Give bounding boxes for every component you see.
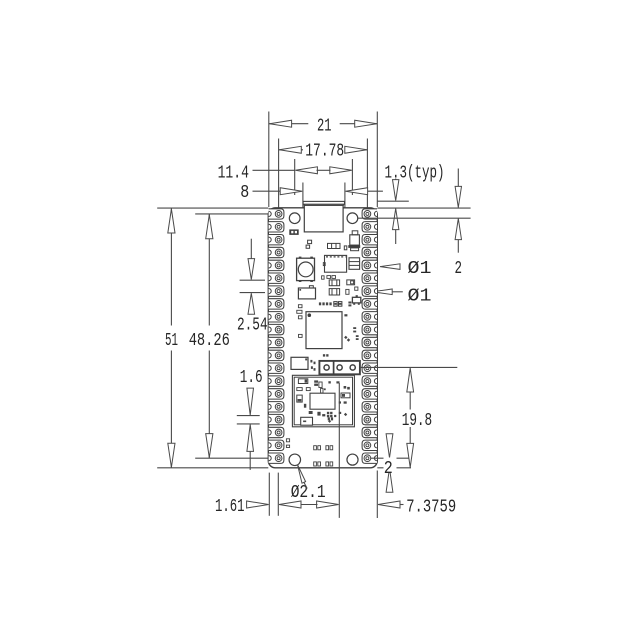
svg-text:8: 8: [240, 182, 249, 203]
svg-text:51: 51: [165, 330, 178, 351]
svg-text:1.61: 1.61: [215, 496, 245, 517]
svg-text:2.54: 2.54: [237, 314, 268, 335]
svg-text:Ø1: Ø1: [408, 258, 432, 279]
svg-text:48.26: 48.26: [189, 330, 230, 351]
svg-text:2: 2: [384, 458, 393, 479]
svg-text:11.4: 11.4: [218, 162, 249, 183]
svg-text:Ø1: Ø1: [408, 286, 432, 307]
svg-text:1.6: 1.6: [240, 367, 263, 388]
svg-text:19.8: 19.8: [402, 410, 433, 431]
svg-text:17.78: 17.78: [305, 141, 344, 162]
svg-text:Ø2.1: Ø2.1: [291, 482, 326, 503]
svg-text:2: 2: [455, 258, 463, 279]
svg-text:7.3759: 7.3759: [406, 497, 456, 518]
svg-text:21: 21: [317, 116, 332, 137]
